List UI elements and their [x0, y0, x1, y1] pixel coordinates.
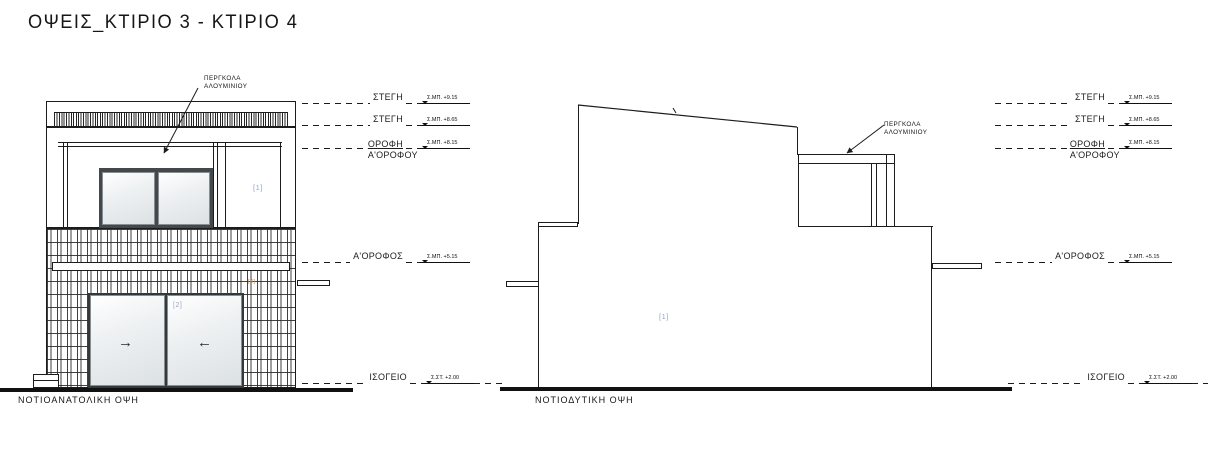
level-dash	[302, 125, 370, 126]
level-dash	[995, 125, 1072, 126]
upper-left-wall-edge	[578, 105, 579, 224]
level-value: Σ.ΣΤ. +2.00	[424, 376, 474, 384]
level-label-sub: Α'ΟΡΟΦΟΥ	[368, 151, 418, 160]
pergola-post	[63, 142, 64, 228]
level-marker-floor1-left: Α'ΟΡΟΦΟΣ Σ.ΜΠ. +5.15	[302, 249, 470, 263]
level-dash	[406, 103, 420, 104]
level-label-sub: Α'ΟΡΟΦΟΥ	[1070, 151, 1120, 160]
right-ledge	[932, 263, 982, 269]
level-label: ΟΡΟΦΗ Α'ΟΡΟΦΟΥ	[1070, 140, 1105, 149]
level-dash	[1008, 383, 1084, 384]
level-label: ΟΡΟΦΗ Α'ΟΡΟΦΟΥ	[368, 140, 403, 149]
level-dash	[995, 262, 1052, 263]
level-value: Σ.ΜΠ. +5.15	[1122, 255, 1172, 263]
level-dash	[1108, 148, 1122, 149]
pergola-post	[213, 142, 214, 228]
lower-left-wall-edge	[538, 226, 539, 387]
level-label: ΙΣΟΓΕΙΟ	[1087, 373, 1125, 382]
roof-slope-line	[578, 105, 797, 127]
entry-step	[33, 374, 59, 388]
level-value: Σ.ΜΠ. +8.15	[1122, 141, 1172, 149]
left-ledge	[538, 222, 578, 227]
level-dash	[302, 103, 370, 104]
slide-direction-arrow-left: ←	[197, 335, 212, 350]
pergola-frame	[798, 154, 895, 227]
pergola-callout-right-line2: ΑΛΟΥΜΙΝΙΟΥ	[884, 129, 927, 136]
pergola-top-rail	[798, 163, 895, 164]
window-pane-left	[102, 172, 155, 225]
pergola-callout-left-line2: ΑΛΟΥΜΙΝΙΟΥ	[204, 83, 247, 90]
pergola-callout-left: ΠΕΡΓΚΟΛΑ ΑΛΟΥΜΙΝΙΟΥ	[204, 75, 247, 91]
sheet-title: ΟΨΕΙΣ_ΚΤΙΡΙΟ 3 - ΚΤΙΡΙΟ 4	[28, 12, 298, 34]
roof-parapet-line	[894, 226, 933, 227]
level-dash	[1108, 262, 1122, 263]
level-value: Σ.ΜΠ. +8.65	[420, 118, 470, 126]
lintel-band	[52, 262, 290, 271]
upper-sliding-window	[99, 168, 213, 228]
roof-slope-tick	[673, 108, 676, 113]
level-marker-roof2-left: ΣΤΕΓΗ Σ.ΜΠ. +8.65	[302, 112, 470, 126]
level-label: ΣΤΕΓΗ	[1075, 115, 1105, 124]
pergola-leader-right	[847, 125, 884, 153]
ceiling-beam-line	[58, 142, 282, 143]
pergola-post	[871, 163, 872, 227]
level-dash	[406, 125, 420, 126]
level-dash	[1108, 103, 1122, 104]
wall-corner-line	[280, 142, 281, 228]
slide-direction-arrow-right: →	[118, 335, 133, 350]
level-value: Σ.ΣΤ. +2.00	[1142, 376, 1192, 384]
level-dash	[302, 148, 365, 149]
level-label: Α'ΟΡΟΦΟΣ	[353, 252, 403, 261]
level-marker-ground-right: ΙΣΟΓΕΙΟ Σ.ΣΤ. +2.00	[1008, 370, 1208, 384]
level-marker-ceiling-left: ΟΡΟΦΗ Α'ΟΡΟΦΟΥ Σ.ΜΠ. +8.15	[302, 135, 470, 149]
pergola-post	[67, 142, 68, 228]
ceiling-beam-line2	[58, 146, 282, 147]
ref-tag-door: [2]	[173, 302, 182, 309]
ref-tag-small: [4]	[248, 279, 256, 285]
level-dash	[474, 383, 502, 384]
pergola-post	[886, 154, 887, 227]
right-wall-edge	[931, 226, 932, 387]
pergola-slats	[54, 112, 288, 127]
sliding-door	[88, 293, 244, 388]
upper-right-wall-edge	[797, 127, 798, 155]
ground-line-right	[500, 387, 1012, 391]
level-marker-ceiling-right: ΟΡΟΦΗ Α'ΟΡΟΦΟΥ Σ.ΜΠ. +8.15	[995, 135, 1172, 149]
level-label: ΣΤΕΓΗ	[1075, 93, 1105, 102]
level-dash	[410, 383, 424, 384]
level-dash	[406, 262, 420, 263]
level-dash	[995, 103, 1072, 104]
level-dash	[406, 148, 420, 149]
pergola-callout-right: ΠΕΡΓΚΟΛΑ ΑΛΟΥΜΙΝΙΟΥ	[884, 121, 927, 137]
level-label: ΣΤΕΓΗ	[373, 115, 403, 124]
right-elevation-caption: ΝΟΤΙΟΔΥΤΙΚΗ ΟΨΗ	[535, 395, 634, 405]
ref-tag-upper-wall: [1]	[253, 183, 263, 192]
pergola-post	[217, 142, 218, 228]
drawing-sheet: ΟΨΕΙΣ_ΚΤΙΡΙΟ 3 - ΚΤΙΡΙΟ 4 [1] [4] → ←	[0, 0, 1230, 456]
level-value: Σ.ΜΠ. +9.15	[1122, 96, 1172, 104]
level-marker-roof1-left: ΣΤΕΓΗ Σ.ΜΠ. +9.15	[302, 90, 470, 104]
pergola-callout-right-line1: ΠΕΡΓΚΟΛΑ	[884, 121, 921, 128]
level-value: Σ.ΜΠ. +5.15	[420, 255, 470, 263]
level-marker-floor1-right: Α'ΟΡΟΦΟΣ Σ.ΜΠ. +5.15	[995, 249, 1172, 263]
pergola-post	[876, 163, 877, 227]
level-label: ΙΣΟΓΕΙΟ	[369, 373, 407, 382]
level-value: Σ.ΜΠ. +8.65	[1122, 118, 1172, 126]
level-dash	[1128, 383, 1142, 384]
pergola-callout-left-line1: ΠΕΡΓΚΟΛΑ	[204, 75, 241, 82]
ref-tag-wall: [1]	[659, 312, 669, 321]
left-elevation-caption: ΝΟΤΙΟΑΝΑΤΟΛΙΚΗ ΟΨΗ	[18, 395, 139, 405]
window-pane-right	[158, 172, 211, 225]
level-value: Σ.ΜΠ. +8.15	[420, 141, 470, 149]
level-dash	[1108, 125, 1122, 126]
level-label: Α'ΟΡΟΦΟΣ	[1055, 252, 1105, 261]
side-ledge	[297, 280, 330, 286]
level-label: ΣΤΕΓΗ	[373, 93, 403, 102]
level-dash	[1192, 383, 1208, 384]
level-value: Σ.ΜΠ. +9.15	[420, 96, 470, 104]
level-marker-roof2-right: ΣΤΕΓΗ Σ.ΜΠ. +8.65	[995, 112, 1172, 126]
ground-line-left	[0, 388, 353, 392]
level-dash	[995, 148, 1067, 149]
level-dash	[302, 383, 366, 384]
entry-step-line	[33, 380, 59, 381]
left-fin-ledge	[506, 281, 539, 287]
level-dash	[302, 262, 350, 263]
level-marker-roof1-right: ΣΤΕΓΗ Σ.ΜΠ. +9.15	[995, 90, 1172, 104]
pergola-post	[225, 142, 226, 228]
level-marker-ground-left: ΙΣΟΓΕΙΟ Σ.ΣΤ. +2.00	[302, 370, 502, 384]
